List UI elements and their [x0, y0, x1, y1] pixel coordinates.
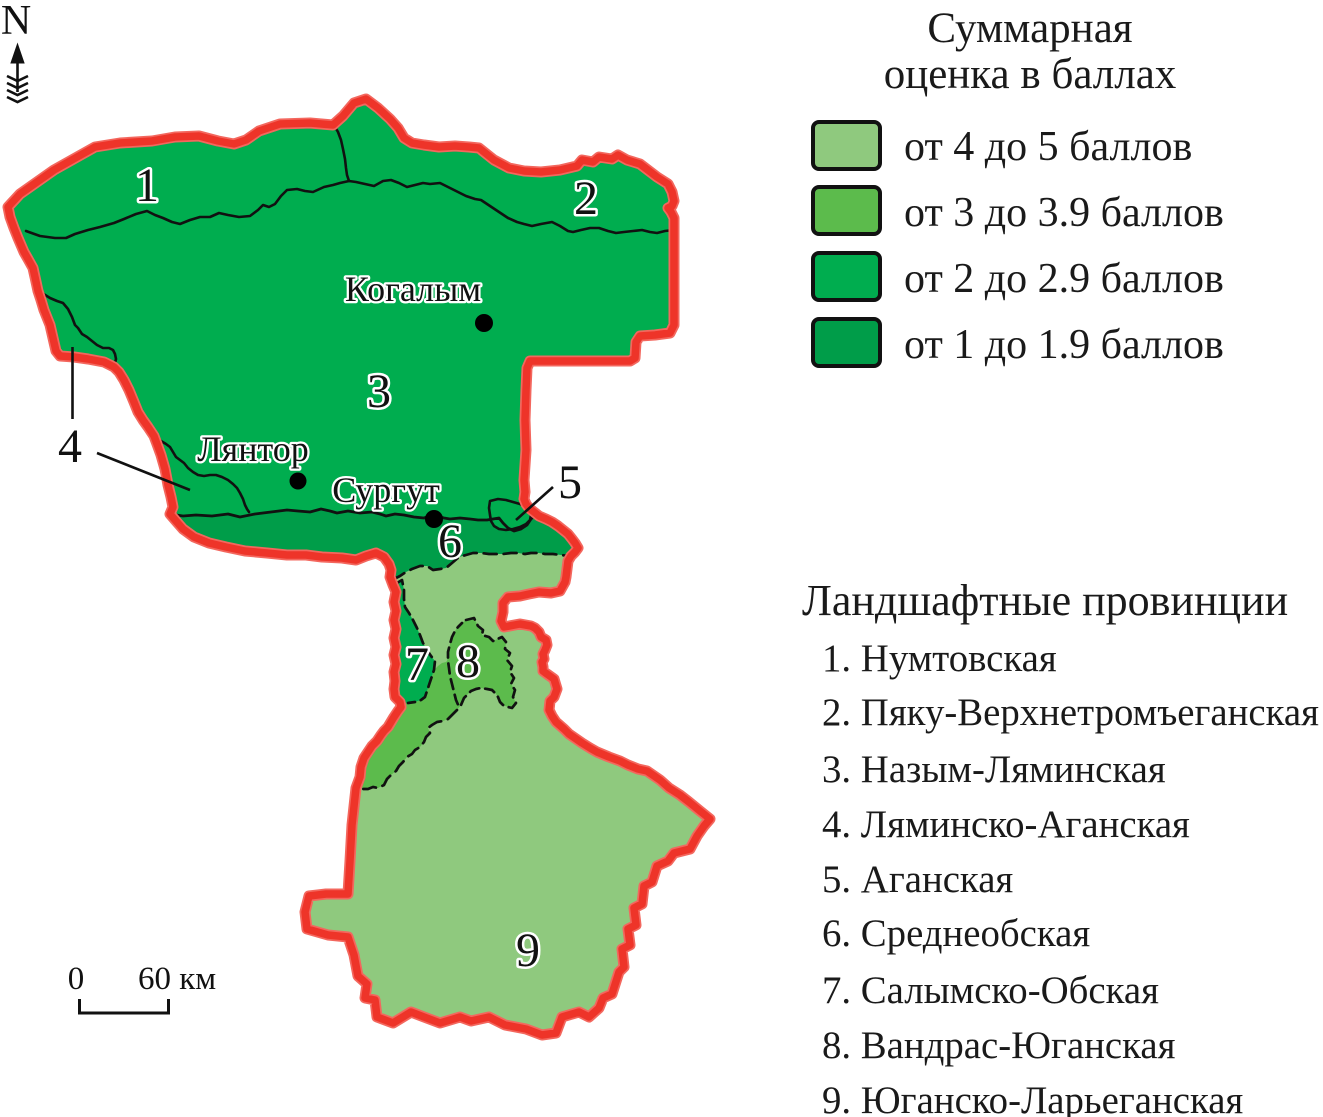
svg-text:3. Назым-Ляминская: 3. Назым-Ляминская	[822, 748, 1166, 791]
svg-text:60 км: 60 км	[138, 961, 216, 997]
svg-text:N: N	[1, 0, 31, 44]
svg-text:0: 0	[68, 961, 85, 997]
svg-text:4. Ляминско-Аганская: 4. Ляминско-Аганская	[822, 803, 1190, 846]
svg-text:Суммарная: Суммарная	[927, 5, 1132, 52]
svg-text:1. Нумтовская: 1. Нумтовская	[822, 637, 1057, 680]
svg-text:3: 3	[367, 365, 391, 418]
svg-text:9. Юганско-Ларьеганская: 9. Юганско-Ларьеганская	[822, 1079, 1243, 1117]
svg-text:2. Пяку-Верхнетромъеганская: 2. Пяку-Верхнетромъеганская	[822, 691, 1319, 734]
svg-text:9: 9	[516, 924, 540, 977]
svg-text:8. Вандрас-Юганская: 8. Вандрас-Юганская	[822, 1024, 1176, 1067]
svg-text:Когалым: Когалым	[345, 269, 481, 309]
svg-text:Сургут: Сургут	[332, 470, 440, 510]
svg-text:оценка в баллах: оценка в баллах	[884, 51, 1177, 98]
svg-text:Ландшафтные провинции: Ландшафтные провинции	[802, 576, 1288, 625]
svg-text:5. Аганская: 5. Аганская	[822, 858, 1013, 901]
svg-text:6. Среднеобская: 6. Среднеобская	[822, 912, 1090, 955]
svg-text:от 3 до 3.9 баллов: от 3 до 3.9 баллов	[904, 190, 1224, 236]
svg-text:Лянтор: Лянтор	[197, 429, 309, 469]
svg-text:8: 8	[456, 635, 480, 688]
svg-text:7. Салымско-Обская: 7. Салымско-Обская	[822, 969, 1159, 1012]
svg-text:7: 7	[405, 638, 429, 691]
svg-text:1: 1	[135, 159, 159, 212]
svg-text:от 4 до 5 баллов: от 4 до 5 баллов	[904, 124, 1192, 170]
svg-text:от 1 до 1.9 баллов: от 1 до 1.9 баллов	[904, 322, 1224, 368]
svg-text:4: 4	[58, 420, 82, 473]
svg-text:6: 6	[438, 515, 462, 568]
svg-text:от 2 до 2.9 баллов: от 2 до 2.9 баллов	[904, 256, 1224, 302]
svg-text:2: 2	[574, 172, 598, 225]
svg-text:5: 5	[558, 456, 582, 509]
